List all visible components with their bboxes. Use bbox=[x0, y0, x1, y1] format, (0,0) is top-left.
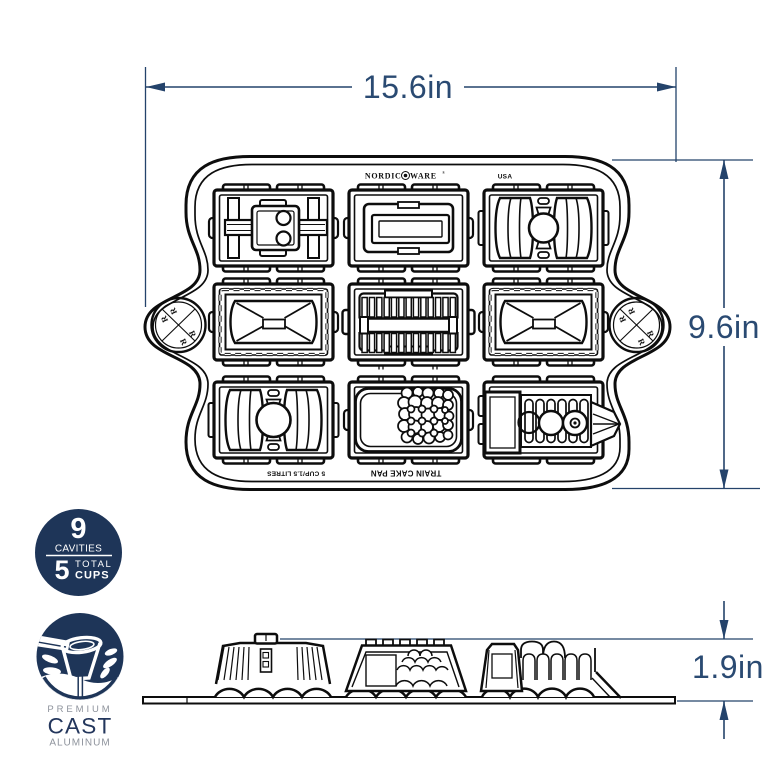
svg-text:TRAIN CAKE PAN: TRAIN CAKE PAN bbox=[371, 469, 442, 478]
svg-text:9: 9 bbox=[70, 513, 86, 545]
svg-text:9.6in: 9.6in bbox=[688, 309, 760, 345]
svg-text:CUPS: CUPS bbox=[75, 570, 110, 582]
svg-text:CAST: CAST bbox=[48, 714, 113, 739]
svg-text:NORDIC: NORDIC bbox=[365, 172, 402, 181]
svg-text:TOTAL: TOTAL bbox=[75, 559, 112, 570]
svg-text:1.9in: 1.9in bbox=[692, 649, 764, 685]
svg-text:®: ® bbox=[442, 170, 445, 175]
svg-text:5: 5 bbox=[54, 555, 69, 585]
svg-text:15.6in: 15.6in bbox=[363, 69, 453, 105]
svg-text:ALUMINUM: ALUMINUM bbox=[49, 738, 110, 749]
svg-text:CAVITIES: CAVITIES bbox=[55, 544, 102, 555]
svg-text:WARE: WARE bbox=[410, 172, 437, 181]
svg-text:5 CUP/1.5 LITRES: 5 CUP/1.5 LITRES bbox=[266, 470, 325, 477]
svg-text:USA: USA bbox=[498, 174, 513, 181]
